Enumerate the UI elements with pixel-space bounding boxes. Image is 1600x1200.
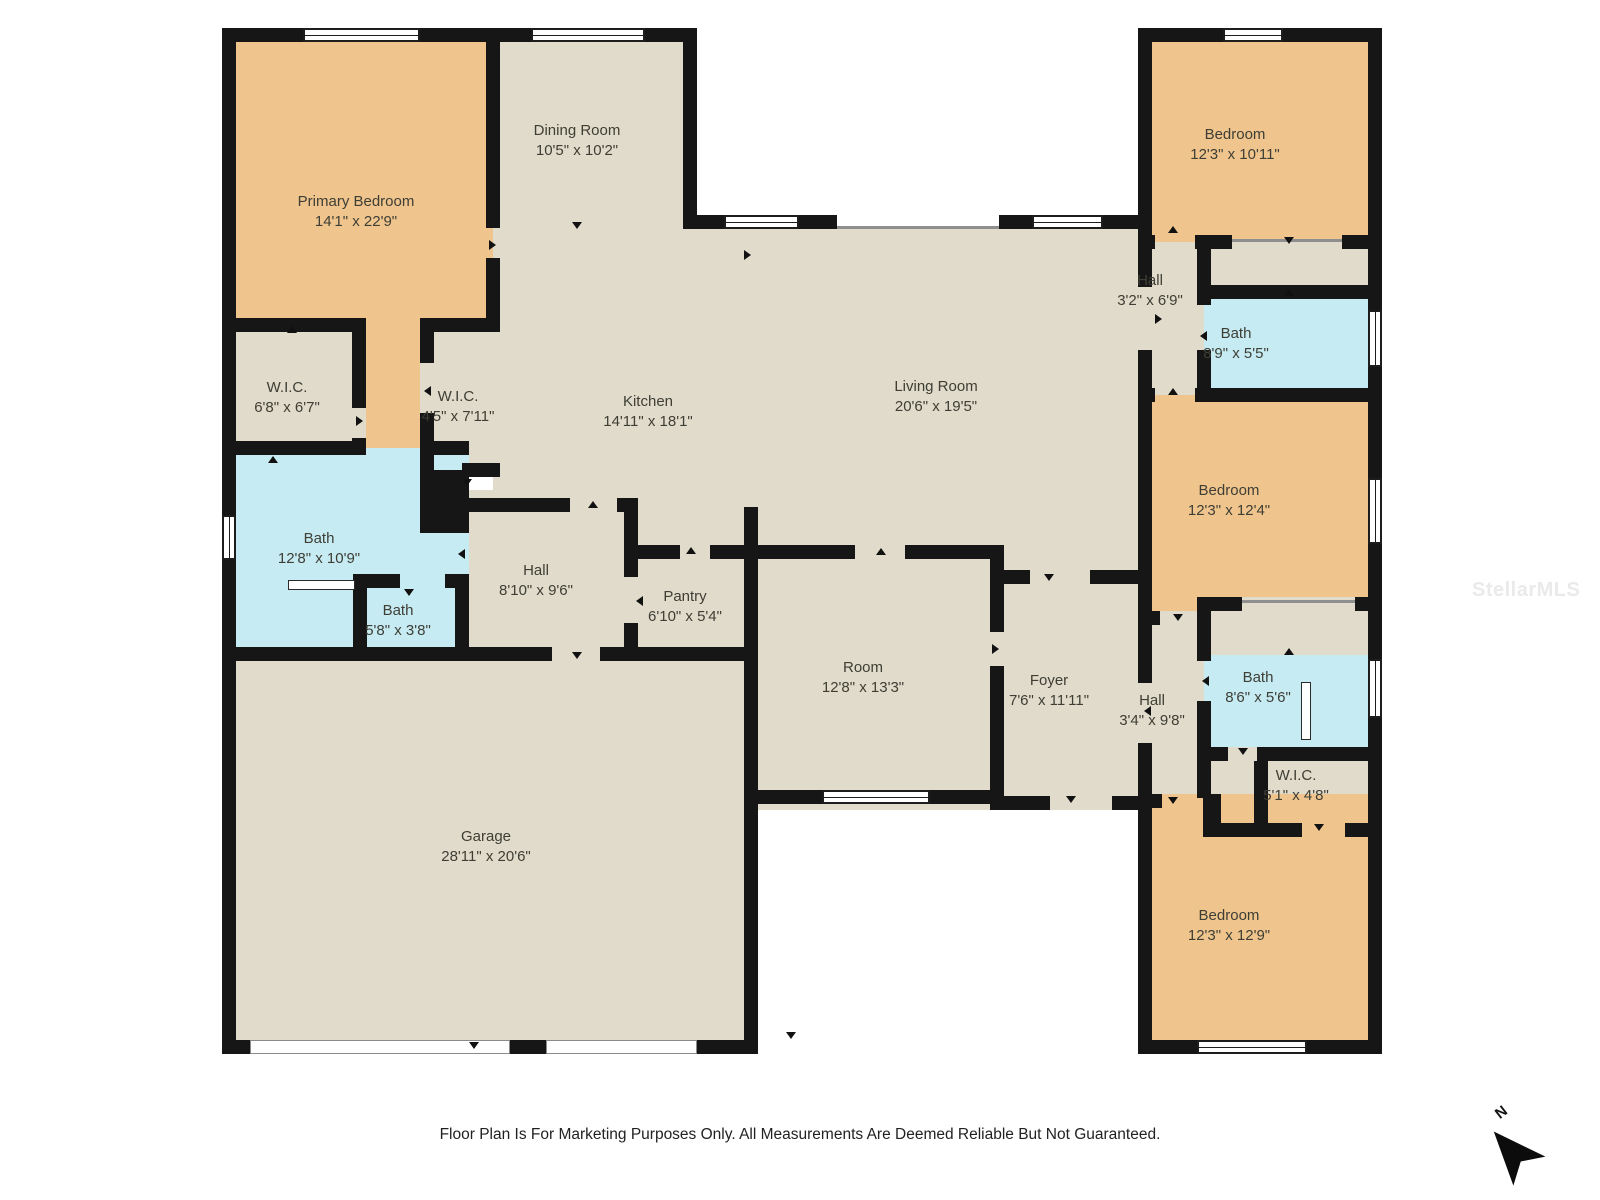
wall (990, 549, 1004, 632)
room-name: Pantry (648, 587, 722, 607)
north-arrow-icon: N (1478, 1118, 1550, 1190)
wall (1368, 367, 1382, 478)
vanity-fixture (288, 580, 355, 590)
window-icon (1368, 310, 1382, 367)
floor-plan: Primary Bedroom 14'1" x 22'9" Dining Roo… (0, 0, 1600, 1200)
wall (990, 666, 1004, 810)
sliding-door-line (1242, 600, 1355, 603)
room-dims: 7'6" x 11'11" (1009, 691, 1089, 711)
wall (486, 42, 500, 228)
door-arrow-icon (356, 416, 363, 426)
door-arrow-icon (1238, 748, 1248, 755)
door-arrow-icon (489, 240, 496, 250)
room-dims: 3'4" x 9'8" (1119, 711, 1185, 731)
room-dims: 14'11" x 18'1" (603, 412, 693, 432)
room-label-kitchen: Kitchen 14'11" x 18'1" (603, 392, 693, 432)
window-icon (222, 515, 236, 560)
wall (510, 1040, 546, 1054)
wall (1197, 249, 1211, 305)
room-name: Hall (1119, 691, 1185, 711)
room-name: Hall (1117, 271, 1183, 291)
room-label-bath-primary: Bath 12'8" x 10'9" (278, 529, 360, 569)
window-icon (1197, 1040, 1307, 1054)
door-arrow-icon (572, 652, 582, 659)
room-dims: 8'10" x 9'6" (499, 581, 573, 601)
room-name: Room (822, 658, 904, 678)
wall-opening (837, 215, 999, 226)
wall (747, 545, 855, 559)
wall (1342, 235, 1368, 249)
door-arrow-icon (1155, 314, 1162, 324)
window-icon (1032, 215, 1103, 229)
window-icon (1368, 478, 1382, 544)
door-arrow-icon (992, 644, 999, 654)
wall (1138, 235, 1155, 249)
room-fill-room-foyer (747, 549, 1152, 810)
room-name: Bedroom (1188, 906, 1270, 926)
wall (744, 507, 758, 1054)
room-label-bedroom-mid-right: Bedroom 12'3" x 12'4" (1188, 481, 1270, 521)
shower-glass-fixture (1301, 682, 1311, 740)
disclaimer-text: Floor Plan Is For Marketing Purposes Onl… (0, 1126, 1600, 1144)
wall (1197, 761, 1211, 798)
room-dims: 14'1" x 22'9" (298, 212, 415, 232)
wall (1195, 235, 1232, 249)
room-label-pantry: Pantry 6'10" x 5'4" (648, 587, 722, 627)
room-name: W.I.C. (1263, 766, 1329, 786)
wall (930, 790, 1004, 804)
wall (1197, 597, 1242, 611)
wall (1138, 611, 1160, 625)
room-name: W.I.C. (254, 378, 320, 398)
door-arrow-icon (1284, 648, 1294, 655)
room-name: Living Room (894, 377, 977, 397)
room-name: Garage (441, 827, 531, 847)
wall (624, 498, 638, 577)
room-label-bath-secondary: Bath 5'8" x 3'8" (365, 601, 431, 641)
window-icon (822, 790, 930, 804)
glass-opening-line (837, 226, 999, 229)
wall (638, 545, 680, 559)
watermark: StellarMLS (1472, 579, 1580, 602)
door-arrow-icon (1066, 796, 1076, 803)
door-arrow-icon (1168, 797, 1178, 804)
room-dims: 10'5" x 10'2" (534, 141, 621, 161)
room-name: Foyer (1009, 671, 1089, 691)
wall (1368, 544, 1382, 659)
wall (455, 498, 570, 512)
room-label-living-room: Living Room 20'6" x 19'5" (894, 377, 977, 417)
wall (1307, 1040, 1382, 1054)
window-icon (1223, 28, 1283, 42)
wall (1355, 597, 1368, 611)
room-label-dining-room: Dining Room 10'5" x 10'2" (534, 121, 621, 161)
room-name: Bath (1225, 668, 1291, 688)
door-arrow-icon (1044, 574, 1054, 581)
room-label-hall-primary: Hall 8'10" x 9'6" (499, 561, 573, 601)
room-dims: 12'3" x 12'9" (1188, 926, 1270, 946)
door-arrow-icon (1168, 388, 1178, 395)
room-fill-primary-bedroom (229, 35, 493, 332)
door-arrow-icon (1284, 289, 1294, 296)
door-arrow-icon (1168, 226, 1178, 233)
room-label-bedroom-bottom-right: Bedroom 12'3" x 12'9" (1188, 906, 1270, 946)
door-arrow-icon (462, 479, 472, 486)
door-arrow-icon (636, 596, 643, 606)
wall (697, 1040, 758, 1054)
room-dims: 6'8" x 6'7" (254, 398, 320, 418)
wall (1197, 701, 1211, 747)
room-dims: 28'11" x 20'6" (441, 847, 531, 867)
door-arrow-icon (588, 501, 598, 508)
wall (1345, 823, 1368, 837)
room-name: Bedroom (1188, 481, 1270, 501)
room-dims: 5'8" x 3'8" (365, 621, 431, 641)
wall (1368, 718, 1382, 1054)
room-label-primary-bedroom: Primary Bedroom 14'1" x 22'9" (298, 192, 415, 232)
window-icon (1368, 659, 1382, 718)
room-dims: 4'5" x 7'11" (422, 407, 495, 427)
door-arrow-icon (786, 1032, 796, 1039)
room-label-garage: Garage 28'11" x 20'6" (441, 827, 531, 867)
wall (222, 441, 352, 455)
room-name: Dining Room (534, 121, 621, 141)
door-arrow-icon (469, 1042, 479, 1049)
room-name: Bath (365, 601, 431, 621)
wall (1004, 570, 1030, 584)
room-dims: 20'6" x 19'5" (894, 397, 977, 417)
door-arrow-icon (686, 547, 696, 554)
wall (1138, 794, 1162, 808)
wall (352, 438, 366, 455)
wall (222, 1040, 250, 1054)
room-dims: 8'9" x 5'5" (1203, 344, 1269, 364)
door-arrow-icon (744, 250, 751, 260)
room-name: Bath (1203, 324, 1269, 344)
wall (420, 318, 500, 332)
wall (1138, 1040, 1197, 1054)
door-arrow-icon (404, 589, 414, 596)
door-arrow-icon (1314, 824, 1324, 831)
room-dims: 8'6" x 5'6" (1225, 688, 1291, 708)
wall (754, 790, 822, 804)
room-label-bath-mid-right: Bath 8'6" x 5'6" (1225, 668, 1291, 708)
room-name: Bedroom (1190, 125, 1280, 145)
room-dims: 12'3" x 10'11" (1190, 145, 1280, 165)
wall (455, 512, 469, 527)
wall (1197, 611, 1211, 661)
room-name: Kitchen (603, 392, 693, 412)
room-dims: 3'2" x 6'9" (1117, 291, 1183, 311)
door-arrow-icon (287, 326, 297, 333)
room-dims: 12'3" x 12'4" (1188, 501, 1270, 521)
wall (420, 332, 434, 363)
door-arrow-icon (458, 549, 465, 559)
wall (1257, 747, 1368, 761)
door-arrow-icon (876, 548, 886, 555)
wall (1138, 743, 1152, 1054)
wall (1004, 796, 1050, 810)
room-label-wic-mid-right: W.I.C. 5'1" x 4'8" (1263, 766, 1329, 806)
room-label-bedroom-top-right: Bedroom 12'3" x 10'11" (1190, 125, 1280, 165)
wall (1195, 388, 1382, 402)
door-arrow-icon (1284, 237, 1294, 244)
wall (222, 647, 552, 661)
door-arrow-icon (1202, 676, 1209, 686)
north-arrow-glyph (1463, 1103, 1565, 1200)
room-label-foyer: Foyer 7'6" x 11'11" (1009, 671, 1089, 711)
room-label-hall-mid-right: Hall 3'4" x 9'8" (1119, 691, 1185, 731)
room-dims: 5'1" x 4'8" (1263, 786, 1329, 806)
room-name: Primary Bedroom (298, 192, 415, 212)
wall (445, 574, 469, 588)
wall (710, 545, 747, 559)
room-label-bath-top-right: Bath 8'9" x 5'5" (1203, 324, 1269, 364)
door-arrow-icon (572, 222, 582, 229)
room-dims: 12'8" x 10'9" (278, 549, 360, 569)
window-icon (724, 215, 799, 229)
door-arrow-icon (1173, 614, 1183, 621)
wall (352, 318, 366, 408)
wall (1138, 388, 1155, 402)
room-label-wic-hall: W.I.C. 4'5" x 7'11" (422, 387, 495, 427)
room-dims: 12'8" x 13'3" (822, 678, 904, 698)
wall (683, 28, 697, 229)
wall (1197, 747, 1228, 761)
room-name: Bath (278, 529, 360, 549)
window-icon (531, 28, 645, 42)
wall (1203, 794, 1221, 837)
wall (1368, 28, 1382, 310)
room-name: Hall (499, 561, 573, 581)
wall (600, 647, 754, 661)
door-arrow-icon (268, 456, 278, 463)
room-label-wic-primary: W.I.C. 6'8" x 6'7" (254, 378, 320, 418)
room-dims: 6'10" x 5'4" (648, 607, 722, 627)
room-name: W.I.C. (422, 387, 495, 407)
room-label-hall-top-right: Hall 3'2" x 6'9" (1117, 271, 1183, 311)
room-label-room: Room 12'8" x 13'3" (822, 658, 904, 698)
garage-door-icon (546, 1040, 697, 1054)
window-icon (303, 28, 420, 42)
wall (1217, 823, 1302, 837)
